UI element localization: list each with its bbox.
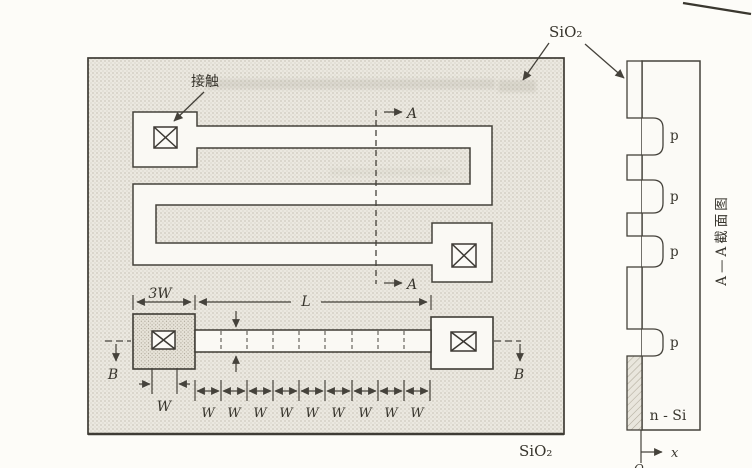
w-label: W bbox=[279, 406, 294, 421]
layout-top-view: 接触 A A bbox=[88, 58, 564, 460]
contact-label: 接触 bbox=[191, 73, 219, 90]
p-label-1: p bbox=[670, 128, 679, 144]
sio2-label-bottom: SiO₂ bbox=[519, 442, 552, 460]
lower-left-contact-window bbox=[152, 331, 175, 349]
w-label: W bbox=[305, 406, 320, 421]
w-label: W bbox=[410, 406, 425, 421]
w-label: W bbox=[384, 406, 399, 421]
w-label: W bbox=[331, 406, 346, 421]
p-region-2 bbox=[642, 180, 663, 213]
x-axis: x O bbox=[634, 430, 679, 468]
p-region-3 bbox=[642, 236, 663, 267]
serpentine-resistor bbox=[133, 112, 492, 282]
w-label: W bbox=[227, 406, 242, 421]
contact-window-mid-right bbox=[452, 244, 476, 267]
p-label-3: p bbox=[670, 244, 679, 260]
dim-3w-label: 3W bbox=[148, 286, 173, 302]
p-region-1 bbox=[642, 118, 663, 155]
w-label: W bbox=[358, 406, 373, 421]
scan-artifact-line bbox=[683, 3, 751, 14]
sio2-layer-hatched bbox=[627, 356, 642, 430]
contact-window-top-left bbox=[154, 127, 177, 148]
dim-l-label: L bbox=[300, 294, 310, 310]
p-label-4: p bbox=[670, 335, 679, 351]
sio2-layer-segments bbox=[627, 61, 642, 430]
w-label: W bbox=[201, 406, 216, 421]
resistor-strip bbox=[195, 330, 431, 352]
sio2-arrow-right bbox=[585, 44, 624, 78]
x-axis-label: x bbox=[671, 446, 679, 461]
p-label-2: p bbox=[670, 189, 679, 205]
p-region-4 bbox=[642, 329, 663, 356]
figure-diffused-resistor: 接触 A A bbox=[0, 0, 752, 468]
lower-right-contact-window bbox=[451, 332, 476, 351]
origin-label: O bbox=[634, 462, 644, 468]
figure-canvas: 接触 A A bbox=[0, 0, 752, 468]
section-a-label-top: A bbox=[405, 106, 417, 122]
cross-section-title: A—A截面图 bbox=[714, 194, 730, 287]
dim-contact-w-label: W bbox=[157, 399, 173, 415]
section-a-label-bottom: A bbox=[405, 277, 417, 293]
section-b-label-left: B bbox=[107, 367, 118, 383]
cross-section-view: p p p p n - Si x O A—A截面图 bbox=[627, 61, 730, 468]
w-label: W bbox=[253, 406, 268, 421]
dimension-w-labels: W W W W W W W W W bbox=[201, 406, 425, 421]
substrate-label: n - Si bbox=[650, 408, 687, 424]
section-b-label-right: B bbox=[513, 367, 524, 383]
sio2-label-top: SiO₂ bbox=[549, 23, 582, 41]
